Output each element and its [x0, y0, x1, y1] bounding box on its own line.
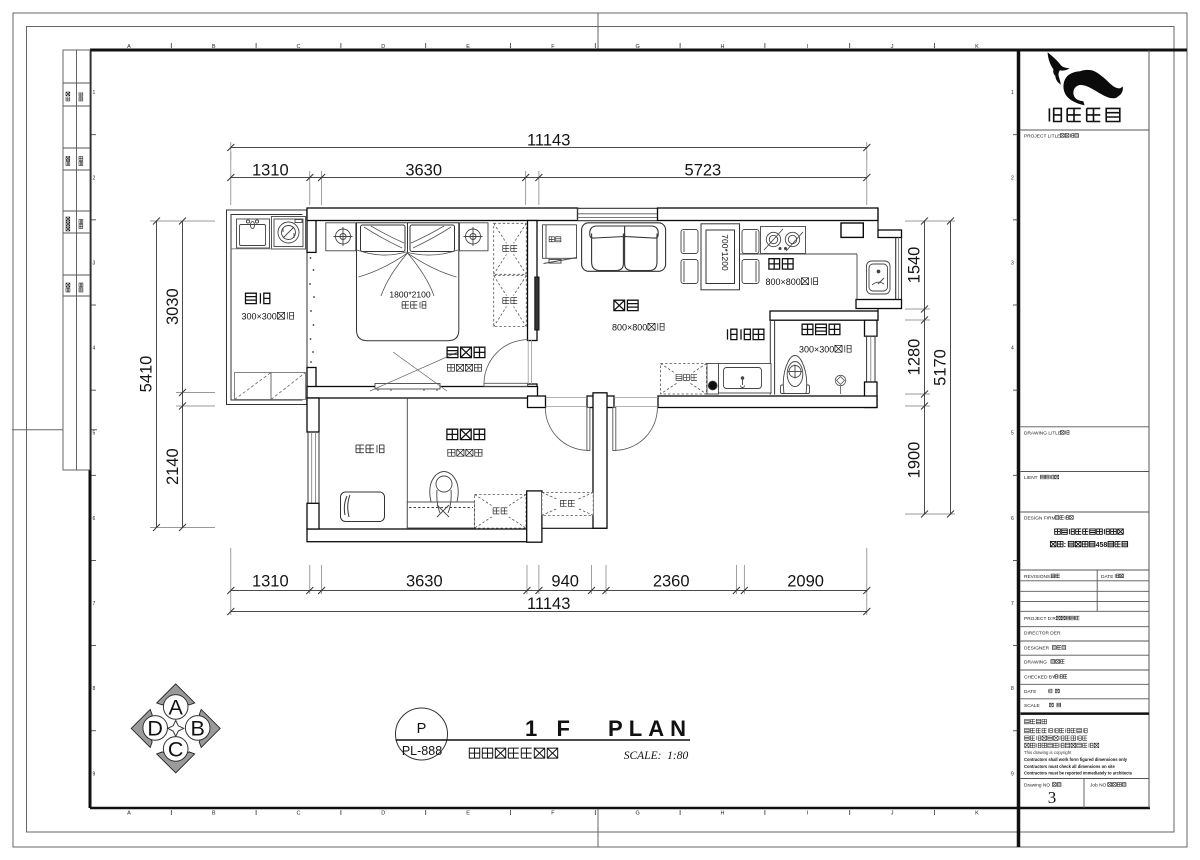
- svg-text:800×800: 800×800: [766, 277, 801, 287]
- svg-text:9: 9: [93, 771, 96, 777]
- svg-text:REVISIONS: REVISIONS: [1024, 574, 1050, 580]
- svg-text:J: J: [891, 811, 894, 817]
- svg-text:7: 7: [1011, 601, 1014, 607]
- svg-text:1540: 1540: [906, 247, 924, 284]
- svg-text:2140: 2140: [164, 448, 182, 485]
- svg-text:4: 4: [1011, 346, 1014, 352]
- svg-text:DATE: DATE: [1024, 689, 1036, 695]
- svg-text:1280: 1280: [906, 339, 924, 376]
- svg-text:700*1200: 700*1200: [720, 234, 730, 271]
- svg-text:1800*2100: 1800*2100: [389, 290, 430, 300]
- svg-text:5: 5: [1011, 431, 1014, 437]
- svg-text:LIENT: LIENT: [1024, 475, 1038, 481]
- svg-text:11143: 11143: [527, 132, 570, 150]
- svg-text:Drawing NO: Drawing NO: [1024, 783, 1050, 789]
- svg-text:2: 2: [1011, 175, 1014, 181]
- svg-text:H: H: [721, 811, 725, 817]
- svg-text:9: 9: [1011, 771, 1014, 777]
- svg-text:Job NO: Job NO: [1090, 783, 1107, 789]
- svg-text:This drawing is copyright: This drawing is copyright: [1024, 750, 1072, 755]
- svg-text:C: C: [297, 811, 301, 817]
- svg-text:6: 6: [93, 516, 96, 522]
- svg-text:PL-888: PL-888: [402, 744, 442, 758]
- svg-text:DRAWING LITLE: DRAWING LITLE: [1024, 431, 1061, 437]
- svg-text:3: 3: [1048, 788, 1057, 807]
- svg-text:300×300: 300×300: [242, 312, 277, 322]
- svg-text:E: E: [466, 811, 470, 817]
- svg-text:E: E: [466, 44, 470, 50]
- svg-text:5: 5: [93, 431, 96, 437]
- svg-text:Contractors must check all dim: Contractors must check all dimensions on…: [1024, 764, 1115, 769]
- svg-text:3: 3: [1011, 260, 1014, 266]
- svg-text:3630: 3630: [406, 573, 443, 591]
- svg-text:B: B: [212, 44, 216, 50]
- svg-text:3630: 3630: [405, 162, 442, 180]
- svg-text:B: B: [212, 811, 216, 817]
- svg-text:8: 8: [1011, 686, 1014, 692]
- svg-text:A: A: [169, 695, 184, 719]
- svg-text:G: G: [636, 44, 640, 50]
- svg-text:P: P: [417, 721, 427, 737]
- svg-text:A: A: [127, 44, 131, 50]
- svg-text:4: 4: [93, 346, 96, 352]
- svg-text:7: 7: [93, 601, 96, 607]
- svg-text:DATE: DATE: [1101, 574, 1113, 580]
- svg-text:8: 8: [93, 686, 96, 692]
- svg-text:C: C: [297, 44, 301, 50]
- svg-text:Contractors must be reported i: Contractors must be reported immediately…: [1024, 771, 1133, 776]
- svg-text:DRAWING: DRAWING: [1024, 660, 1047, 666]
- svg-text:6: 6: [1011, 516, 1014, 522]
- svg-text:3030: 3030: [164, 288, 182, 325]
- svg-text:DIRECTOR DER: DIRECTOR DER: [1024, 631, 1061, 637]
- svg-text:800×800: 800×800: [612, 323, 647, 333]
- svg-text:1310: 1310: [252, 162, 289, 180]
- svg-text:1: 1: [1011, 90, 1014, 96]
- svg-text:300×300: 300×300: [799, 345, 834, 355]
- svg-text:1: 1: [93, 90, 96, 96]
- svg-text:D: D: [147, 716, 163, 740]
- svg-text:J: J: [891, 44, 894, 50]
- svg-text:3: 3: [93, 260, 96, 266]
- svg-text:C: C: [168, 737, 184, 761]
- svg-text:1310: 1310: [252, 573, 289, 591]
- svg-text:SCALE: 1:80: SCALE: 1:80: [624, 750, 689, 762]
- svg-text:5170: 5170: [932, 349, 950, 386]
- svg-text:H: H: [721, 44, 725, 50]
- svg-text:SCALE: SCALE: [1024, 703, 1040, 709]
- svg-text:2090: 2090: [787, 573, 824, 591]
- svg-text:B: B: [191, 716, 205, 740]
- svg-text:Contractors shall work form fi: Contractors shall work form figured dime…: [1024, 757, 1128, 762]
- svg-text:5410: 5410: [138, 356, 156, 393]
- svg-text:PROJECT D:R: PROJECT D:R: [1024, 616, 1056, 622]
- svg-text:2: 2: [93, 175, 96, 181]
- svg-text:2360: 2360: [653, 573, 690, 591]
- svg-text:D: D: [381, 44, 385, 50]
- svg-text:A: A: [127, 811, 131, 817]
- svg-text:CHECKED BY: CHECKED BY: [1024, 675, 1056, 681]
- svg-text:5723: 5723: [685, 162, 722, 180]
- svg-text:1900: 1900: [906, 442, 924, 479]
- svg-text:DESIGNER: DESIGNER: [1024, 646, 1050, 652]
- svg-text:PROJECT LITLE: PROJECT LITLE: [1024, 134, 1060, 140]
- svg-text:D: D: [381, 811, 385, 817]
- svg-text:11143: 11143: [527, 595, 570, 613]
- svg-text:K: K: [975, 811, 979, 817]
- svg-text::: :: [1064, 542, 1066, 549]
- svg-text:G: G: [636, 811, 640, 817]
- svg-text:DESIGN FIRM: DESIGN FIRM: [1024, 516, 1055, 522]
- svg-text:K: K: [975, 44, 979, 50]
- svg-text:458: 458: [1096, 542, 1108, 549]
- svg-text:940: 940: [551, 573, 579, 591]
